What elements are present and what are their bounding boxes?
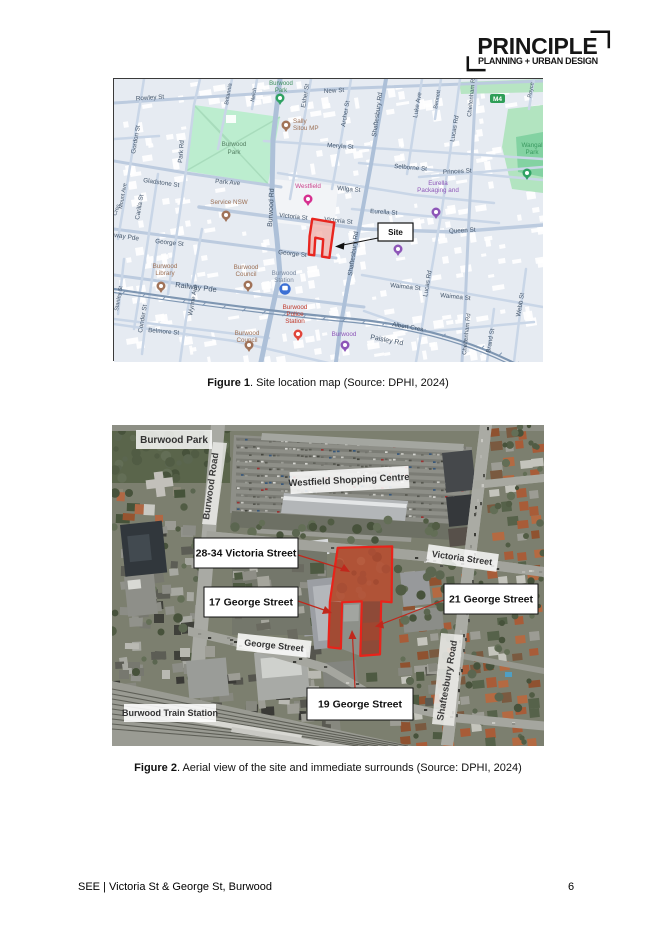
svg-text:Police: Police (286, 311, 304, 318)
svg-text:Burwood: Burwood (272, 270, 297, 277)
svg-text:19 George Street: 19 George Street (318, 699, 403, 711)
svg-text:Queen St: Queen St (449, 227, 476, 235)
svg-text:21 George Street: 21 George Street (449, 594, 534, 606)
svg-text:Service NSW: Service NSW (210, 199, 247, 206)
svg-text:PLANNING + URBAN DESIGN: PLANNING + URBAN DESIGN (478, 56, 598, 66)
svg-text:PRINCIPLE: PRINCIPLE (477, 33, 597, 59)
svg-text:New St: New St (324, 87, 345, 95)
svg-text:Burwood: Burwood (235, 330, 260, 337)
svg-text:Burwood: Burwood (332, 331, 357, 338)
svg-text:Burwood: Burwood (283, 304, 308, 311)
svg-text:Park: Park (526, 149, 540, 156)
svg-text:28-34 Victoria Street: 28-34 Victoria Street (196, 548, 297, 560)
svg-text:Library: Library (155, 270, 175, 277)
svg-text:Sitou MP: Sitou MP (293, 125, 319, 132)
svg-text:Packaging and: Packaging and (417, 187, 459, 194)
svg-text:Station: Station (274, 277, 294, 284)
svg-text:Park: Park (228, 149, 242, 156)
svg-text:Sally: Sally (293, 118, 307, 125)
svg-text:Westfield: Westfield (295, 183, 321, 190)
svg-text:Burwood: Burwood (269, 81, 293, 87)
svg-text:Burwood Park: Burwood Park (140, 435, 208, 446)
svg-text:M4: M4 (493, 96, 502, 103)
svg-text:Burwood: Burwood (234, 264, 259, 271)
svg-text:Wangal: Wangal (521, 142, 542, 149)
svg-text:17 George Street: 17 George Street (209, 597, 294, 609)
svg-text:Burwood: Burwood (222, 141, 247, 148)
svg-text:Burwood Train Station: Burwood Train Station (122, 708, 218, 718)
svg-text:Site: Site (388, 228, 403, 237)
svg-text:Station: Station (285, 318, 305, 325)
svg-text:Eurella: Eurella (428, 180, 448, 187)
svg-text:Burwood: Burwood (153, 263, 178, 270)
svg-text:Council: Council (236, 271, 257, 278)
svg-text:Park: Park (275, 88, 288, 94)
